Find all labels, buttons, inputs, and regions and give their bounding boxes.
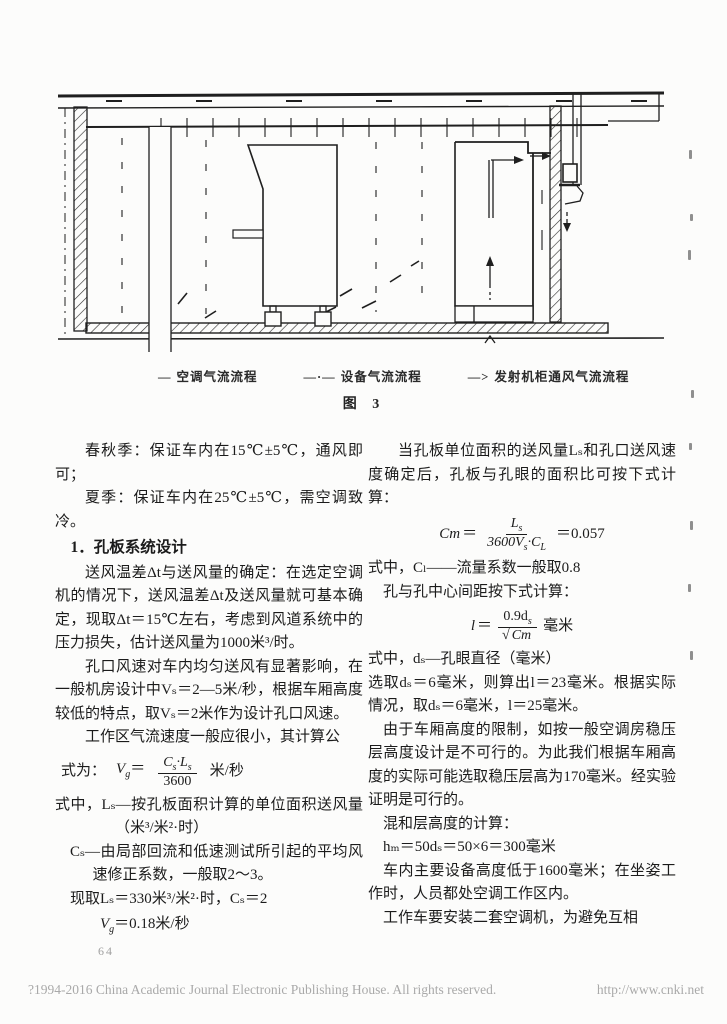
paragraph: 式中，Lₛ—按孔板面积计算的单位面积送风量（米³/米²·时） (55, 794, 363, 841)
figure-caption: 图 3 (56, 393, 672, 413)
figure-3: —空调气流流程 —·—设备气流流程 —>发射机柜通风气流流程 图 3 (56, 90, 672, 413)
solid-line-marker: — (158, 370, 172, 384)
paragraph: 当孔板单位面积的送风量Lₛ和孔口送风速度确定后，孔板与孔眼的面积比可按下式计算： (368, 440, 676, 511)
paragraph: 春秋季：保证车内在15℃±5℃，通风即可； (55, 440, 363, 487)
paragraph: 夏季：保证车内在25℃±5℃，需空调致冷。 (55, 487, 363, 534)
formula-lead: 式为： (61, 760, 106, 784)
paragraph: 工作区气流速度一般应很小，其计算公 (55, 726, 363, 750)
legend-item: —>发射机柜通风气流流程 (468, 366, 630, 385)
formula-unit: 米/秒 (210, 760, 244, 784)
copyright-text: ?1994-2016 China Academic Journal Electr… (28, 982, 496, 998)
scan-artifact (689, 443, 692, 450)
formula-line: hₘ＝50dₛ＝50×6＝300毫米 (368, 836, 676, 860)
paragraph: 工作车要安装二套空调机，为避免互相 (368, 907, 676, 931)
radical-sign: √ (502, 628, 510, 643)
dash-dot-marker: —·— (304, 370, 336, 384)
legend-label: 设备气流流程 (341, 370, 422, 384)
paragraph: 式中，Cₗ——流量系数一般取0.8 (368, 557, 676, 581)
scan-artifact (688, 250, 691, 260)
cnki-url: http://www.cnki.net (597, 982, 704, 998)
paragraph: 现取Lₛ＝330米³/米²·时，Cₛ＝2 (55, 888, 363, 912)
arrow-marker: —> (468, 370, 490, 384)
legend-label: 空调气流流程 (177, 370, 258, 384)
footer: ?1994-2016 China Academic Journal Electr… (28, 982, 704, 998)
paragraph: 混和层高度的计算： (368, 813, 676, 837)
paragraph: Cₛ—由局部回流和低速测试所引起的平均风速修正系数，一般取2～3。 (55, 841, 363, 888)
fraction: Cs·Ls 3600 (158, 755, 196, 790)
paragraph: 送风温差Δt与送风量的确定：在选定空调机的情况下，送风温差Δt及送风量就可基本确… (55, 562, 363, 656)
paragraph: 式中，dₛ—孔眼直径（毫米） (368, 648, 676, 672)
section-heading: 1．孔板系统设计 (55, 536, 363, 560)
paragraph: 车内主要设备高度低于1600毫米；在坐姿工作时，人员都处空调工作区内。 (368, 860, 676, 907)
legend-label: 发射机柜通风气流流程 (494, 370, 629, 384)
vg-formula: 式为： Vg＝ Cs·Ls 3600 米/秒 (55, 755, 363, 790)
paragraph: 孔与孔中心间距按下式计算： (368, 581, 676, 605)
scan-artifact (690, 521, 693, 530)
scan-artifact (688, 584, 691, 592)
figure-3-legend: —空调气流流程 —·—设备气流流程 —>发射机柜通风气流流程 (56, 366, 672, 385)
right-column: 当孔板单位面积的送风量Lₛ和孔口送风速度确定后，孔板与孔眼的面积比可按下式计算：… (368, 440, 676, 930)
formula-unit: 毫米 (543, 615, 573, 639)
scan-artifact (689, 150, 692, 159)
formula-result: ＝0.057 (556, 523, 605, 547)
formula-body: Vg＝ (116, 758, 145, 787)
scan-artifact (690, 214, 693, 221)
figure-3-diagram (56, 90, 672, 352)
cm-formula: Cm ＝ Ls 3600Vs·CL ＝0.057 (368, 516, 676, 554)
scanned-paper-page: —空调气流流程 —·—设备气流流程 —>发射机柜通风气流流程 图 3 春秋季：保… (0, 0, 727, 1024)
scan-artifact (691, 390, 694, 398)
fraction: 0.9ds √Cm (497, 609, 538, 644)
l-formula: l ＝ 0.9ds √Cm 毫米 (368, 609, 676, 644)
paragraph: 由于车厢高度的限制，如按一般空调房稳压层高度设计是不可行的。为此我们根据车厢高度… (368, 719, 676, 813)
left-column: 春秋季：保证车内在15℃±5℃，通风即可； 夏季：保证车内在25℃±5℃，需空调… (55, 440, 363, 944)
fraction: Ls 3600Vs·CL (482, 516, 551, 554)
legend-item: —空调气流流程 (158, 366, 258, 385)
paragraph: 孔口风速对车内均匀送风有显著影响，在一般机房设计中Vₛ＝2—5米/秒，根据车厢高… (55, 656, 363, 727)
legend-item: —·—设备气流流程 (304, 366, 422, 385)
page-number: 64 (98, 944, 114, 959)
paragraph: 选取dₛ＝6毫米，则算出l＝23毫米。根据实际情况，取dₛ＝6毫米，l＝25毫米… (368, 672, 676, 719)
vg-result-line: Vg＝0.18米/秒 (55, 913, 363, 942)
scan-artifact (690, 651, 693, 660)
